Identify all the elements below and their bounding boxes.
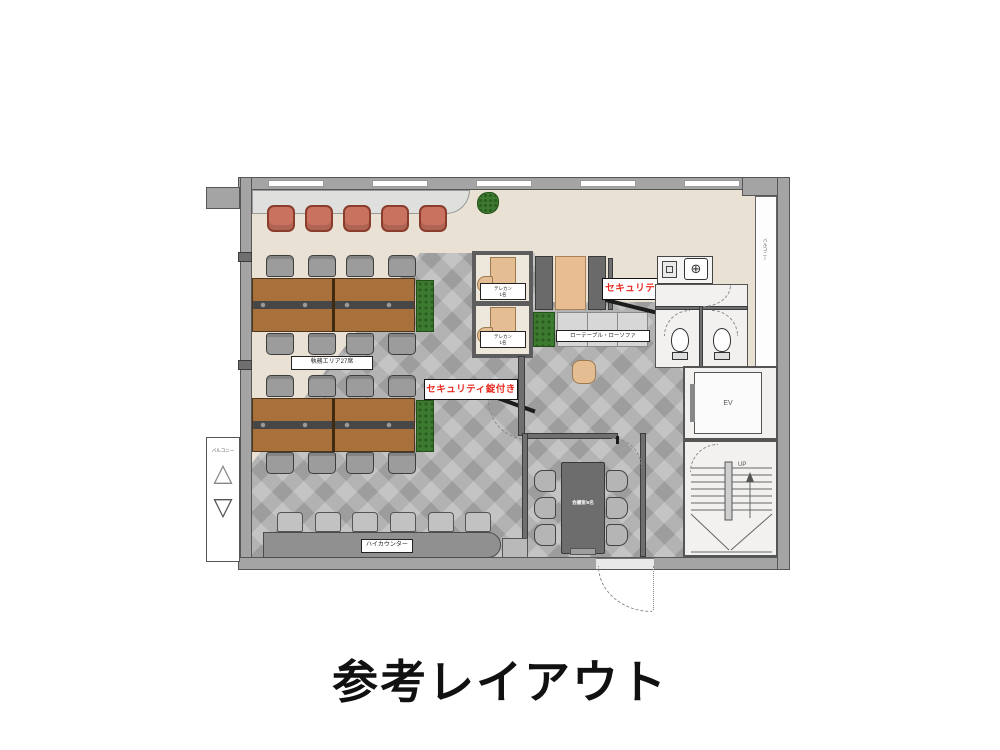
meeting-table	[561, 462, 605, 554]
task-chair-r4-1	[266, 452, 294, 474]
meeting-chair-1-2	[534, 497, 556, 519]
task-chair-r2-3	[346, 333, 374, 355]
balcony-right-label: バルコニー	[762, 238, 768, 261]
window-5	[684, 180, 740, 187]
toilet-divider	[699, 306, 703, 368]
counter-stool-5	[428, 512, 454, 532]
lounge-chair-1	[267, 205, 295, 232]
window-4	[580, 180, 636, 187]
task-chair-r1-1	[266, 255, 294, 277]
planter-1	[416, 280, 434, 332]
entrance-door-line	[653, 566, 654, 610]
tiled-floor	[0, 0, 1000, 750]
task-chair-r4-4	[388, 452, 416, 474]
meeting-wall-top	[522, 433, 618, 439]
meeting-chair-1-1	[534, 470, 556, 492]
wall-mullion-1	[238, 252, 252, 262]
lounge-chair-4	[381, 205, 409, 232]
counter-stool-3	[352, 512, 378, 532]
entrance-door-arc	[598, 566, 652, 612]
high-counter-label: ハイカウンター	[361, 539, 413, 553]
meeting-chair-2-2	[606, 497, 628, 519]
wall-stub-topleft	[206, 187, 240, 209]
toilet-bowl-left	[671, 328, 689, 352]
task-chair-r1-2	[308, 255, 336, 277]
task-chair-r4-2	[308, 452, 336, 474]
meeting-chair-2-1	[606, 470, 628, 492]
counter-stool-1	[277, 512, 303, 532]
meeting-credenza	[570, 548, 596, 555]
sofa-cushion	[555, 256, 586, 310]
trash-unit-inner	[666, 266, 673, 273]
sink: ⊕	[684, 258, 708, 280]
task-chair-r2-2	[308, 333, 336, 355]
wall-stub-topright	[742, 177, 778, 196]
hatch-up-icon: △	[209, 458, 237, 488]
counter-stool-2	[315, 512, 341, 532]
security-label-2: セキュリティ錠付き	[424, 379, 518, 400]
task-chair-r4-3	[346, 452, 374, 474]
task-chair-r1-4	[388, 255, 416, 277]
wall-right	[777, 177, 790, 570]
wall-left	[240, 177, 252, 570]
faucet-icon: ⊕	[691, 261, 702, 277]
hatch-down-icon: ▽	[209, 492, 237, 522]
round-stool	[572, 360, 596, 384]
telecon-desk-1	[490, 257, 516, 285]
stairs-up-label: UP	[738, 462, 746, 468]
elevator-door-rail	[690, 384, 695, 422]
task-chair-r3-2	[308, 375, 336, 397]
meeting-room-label: 会議室/6名	[561, 500, 605, 506]
balcony-right	[755, 196, 777, 368]
toilet-tank-left	[672, 352, 688, 360]
sofa-plants	[533, 312, 555, 347]
counter-stool-6	[465, 512, 491, 532]
telecon-label-2-line2: 1名	[499, 340, 506, 345]
meeting-door-leaf	[616, 436, 619, 444]
toilet-bowl-right	[713, 328, 731, 352]
wall-bottom	[238, 557, 790, 570]
desk-cluster-1-divider	[332, 278, 335, 332]
task-chair-r2-1	[266, 333, 294, 355]
planter-2	[416, 400, 434, 452]
lounge-chair-3	[343, 205, 371, 232]
lounge-chair-5	[419, 205, 447, 232]
elevator-car: EV	[694, 372, 762, 434]
page-title: 参考レイアウト	[0, 646, 1000, 712]
high-counter-end	[502, 538, 528, 558]
telecon-divider	[472, 301, 533, 306]
meeting-chair-1-3	[534, 524, 556, 546]
wall-mullion-2	[238, 360, 252, 370]
telecon-label-2: テレカン 1名	[480, 331, 526, 348]
plant-top	[477, 192, 499, 214]
task-chair-r3-4	[388, 375, 416, 397]
balcony-left-label: バルコニー	[207, 448, 239, 454]
task-chair-r1-3	[346, 255, 374, 277]
toilet-tank-right	[714, 352, 730, 360]
window-1	[268, 180, 324, 187]
task-chair-r3-1	[266, 375, 294, 397]
task-chair-r3-3	[346, 375, 374, 397]
lounge-chair-2	[305, 205, 333, 232]
task-chair-r2-4	[388, 333, 416, 355]
work-area-label: 執務エリア27席	[291, 356, 373, 370]
window-2	[372, 180, 428, 187]
meeting-wall-right	[640, 433, 646, 557]
telecon-label-1-line2: 1名	[499, 292, 506, 297]
page: バルコニー △ ▽ バルコニー 執務エリア27席 テレカン 1名 テレカン 1名…	[0, 0, 1000, 750]
counter-stool-4	[390, 512, 416, 532]
window-3	[476, 180, 532, 187]
meeting-chair-2-3	[606, 524, 628, 546]
elevator-label: EV	[723, 400, 732, 407]
wall-corridor-vert	[518, 356, 525, 436]
sofa-panel-left	[535, 256, 553, 310]
low-table-label: ローテーブル・ローソファ	[556, 330, 650, 342]
desk-cluster-2-divider	[332, 398, 335, 452]
telecon-label-1: テレカン 1名	[480, 283, 526, 300]
